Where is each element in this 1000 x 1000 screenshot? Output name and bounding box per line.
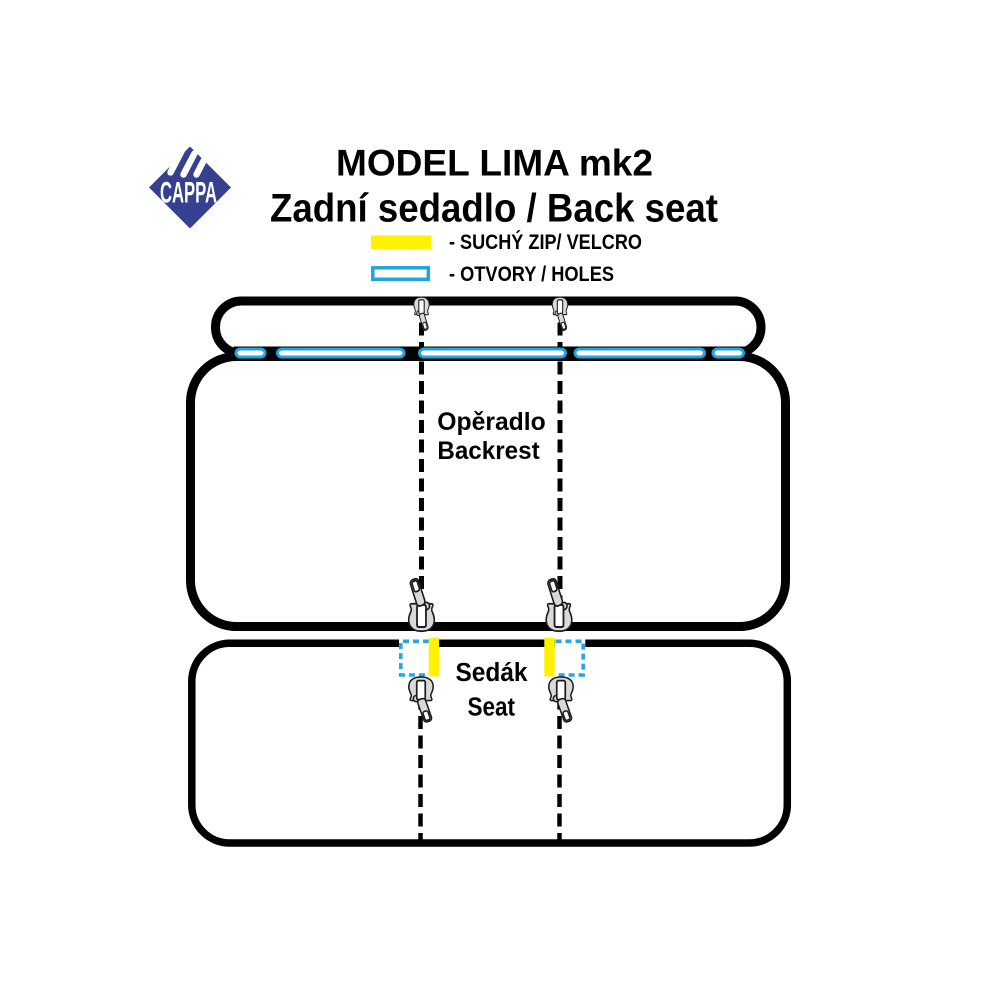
svg-text:- SUCHÝ ZIP/ VELCRO: - SUCHÝ ZIP/ VELCRO [449,230,642,254]
svg-text:CAPPA: CAPPA [160,177,217,210]
svg-text:MODEL LIMA mk2: MODEL LIMA mk2 [336,141,653,183]
svg-text:Backrest: Backrest [437,437,540,465]
svg-text:Sedák: Sedák [456,657,528,687]
svg-text:Zadní sedadlo / Back seat: Zadní sedadlo / Back seat [270,185,718,230]
svg-text:Opěradlo: Opěradlo [437,408,546,436]
svg-text:Seat: Seat [468,691,516,721]
svg-text:- OTVORY / HOLES: - OTVORY / HOLES [449,263,614,286]
